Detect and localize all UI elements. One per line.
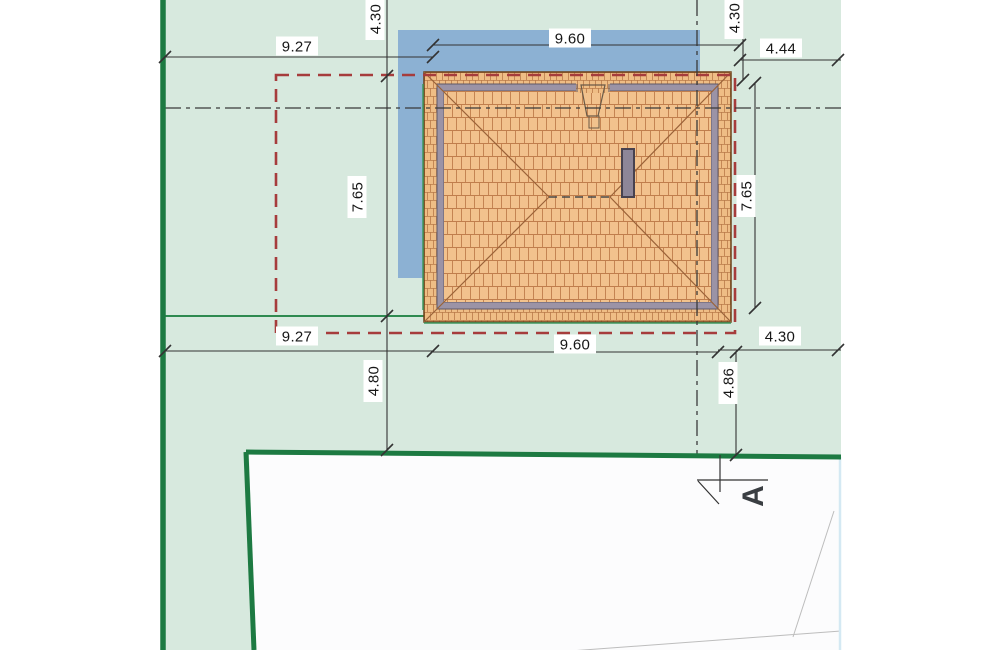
dimension-value: 4.30	[368, 4, 385, 34]
dimension-value: 9.27	[282, 329, 312, 346]
building-roof	[423, 72, 731, 323]
dimension-value: 9.60	[555, 31, 585, 48]
dimension-label-bottom-960: 9.60	[554, 335, 596, 354]
dimension-value: 4.30	[727, 3, 744, 33]
road-area	[249, 454, 841, 650]
dimension-value: 4.44	[766, 41, 796, 58]
dimension-label-top-left-927: 9.27	[276, 37, 318, 56]
dimension-value: 4.86	[721, 368, 738, 398]
dimension-label-right-765: 7.65	[737, 175, 756, 217]
dimension-label-top-960: 9.60	[549, 29, 591, 48]
dimension-value: 4.80	[366, 366, 383, 396]
section-label: A	[737, 485, 770, 507]
dimension-label-left-765: 7.65	[348, 176, 367, 218]
dimension-label-top-right-444: 4.44	[760, 39, 802, 58]
dimension-value: 9.27	[282, 39, 312, 56]
dimension-value: 4.30	[765, 329, 795, 346]
dimension-value: 7.65	[739, 181, 756, 211]
dimension-label-top-right-430: 4.30	[725, 0, 744, 39]
dimension-label-bottom-right-430: 4.30	[759, 327, 801, 346]
chimney	[622, 149, 634, 197]
dimension-value: 7.65	[350, 182, 367, 212]
dimension-label-bottom-left-927: 9.27	[276, 327, 318, 346]
site-plan-drawing: A 9.279.604.304.304.447.657.659.279.604.…	[0, 0, 1000, 650]
dimension-label-right-486: 4.86	[719, 362, 738, 404]
dimension-value: 9.60	[560, 337, 590, 354]
road-surface	[249, 454, 841, 650]
dimension-label-left-480: 4.80	[364, 360, 383, 402]
dimension-label-top-left-430: 4.30	[366, 0, 385, 40]
